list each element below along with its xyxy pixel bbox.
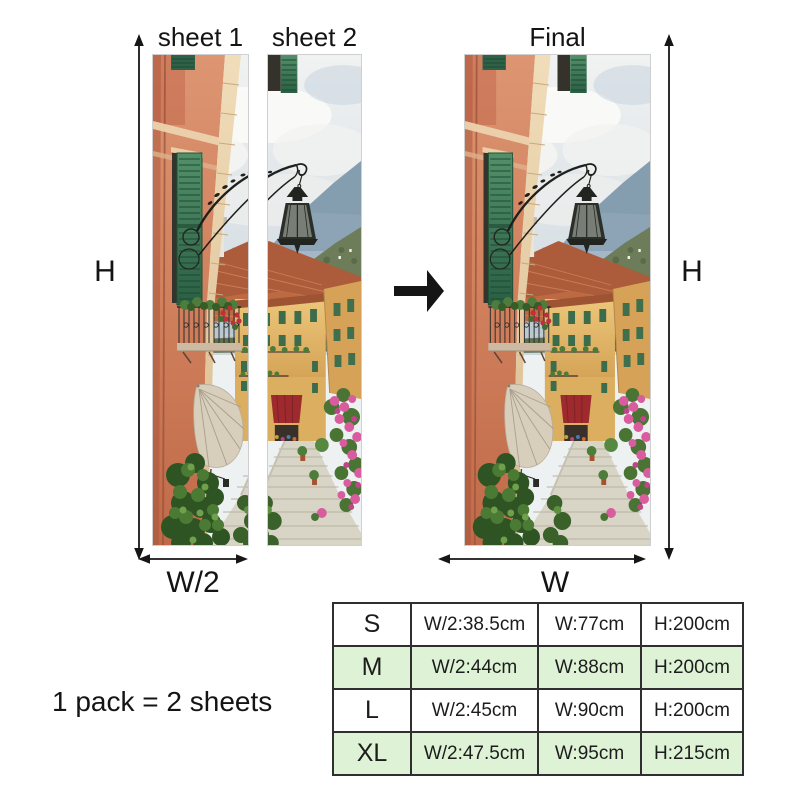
width-label: W [515,566,595,600]
final-mural-scene [465,55,650,545]
size-row-l: L W/2:45cm W:90cm H:200cm [333,689,743,732]
final-image [464,54,651,546]
product-size-diagram: sheet 1 sheet 2 Final H H W/2 W [0,0,800,800]
size-row-xl: XL W/2:47.5cm W:95cm H:215cm [333,732,743,775]
half-width-cell: W/2:45cm [411,689,538,732]
height-label-right: H [672,255,712,289]
height-cell: H:200cm [641,689,743,732]
size-cell: XL [333,732,411,775]
width-cell: W:95cm [538,732,641,775]
size-cell: L [333,689,411,732]
combine-right-arrow-icon [394,269,444,313]
sheet2-label: sheet 2 [267,22,362,53]
height-label-left: H [85,255,125,289]
height-cell: H:200cm [641,603,743,646]
width-cell: W:88cm [538,646,641,689]
half-width-cell: W/2:47.5cm [411,732,538,775]
sheet1-image [152,54,249,546]
sheet1-mural-scene [153,55,248,545]
size-cell: M [333,646,411,689]
final-label: Final [464,22,651,53]
pack-note: 1 pack = 2 sheets [52,686,272,718]
width-arrow [438,553,646,565]
width-cell: W:77cm [538,603,641,646]
size-row-m: M W/2:44cm W:88cm H:200cm [333,646,743,689]
size-cell: S [333,603,411,646]
half-width-label: W/2 [153,566,233,600]
height-arrow-right [663,34,675,560]
height-arrow-left [133,34,145,560]
size-table: S W/2:38.5cm W:77cm H:200cm M W/2:44cm W… [332,602,744,776]
sheet1-label: sheet 1 [152,22,249,53]
height-cell: H:200cm [641,646,743,689]
sheet2-mural-scene [268,55,361,545]
half-width-arrow [138,553,248,565]
height-cell: H:215cm [641,732,743,775]
half-width-cell: W/2:38.5cm [411,603,538,646]
width-cell: W:90cm [538,689,641,732]
half-width-cell: W/2:44cm [411,646,538,689]
size-row-s: S W/2:38.5cm W:77cm H:200cm [333,603,743,646]
sheet2-image [267,54,362,546]
